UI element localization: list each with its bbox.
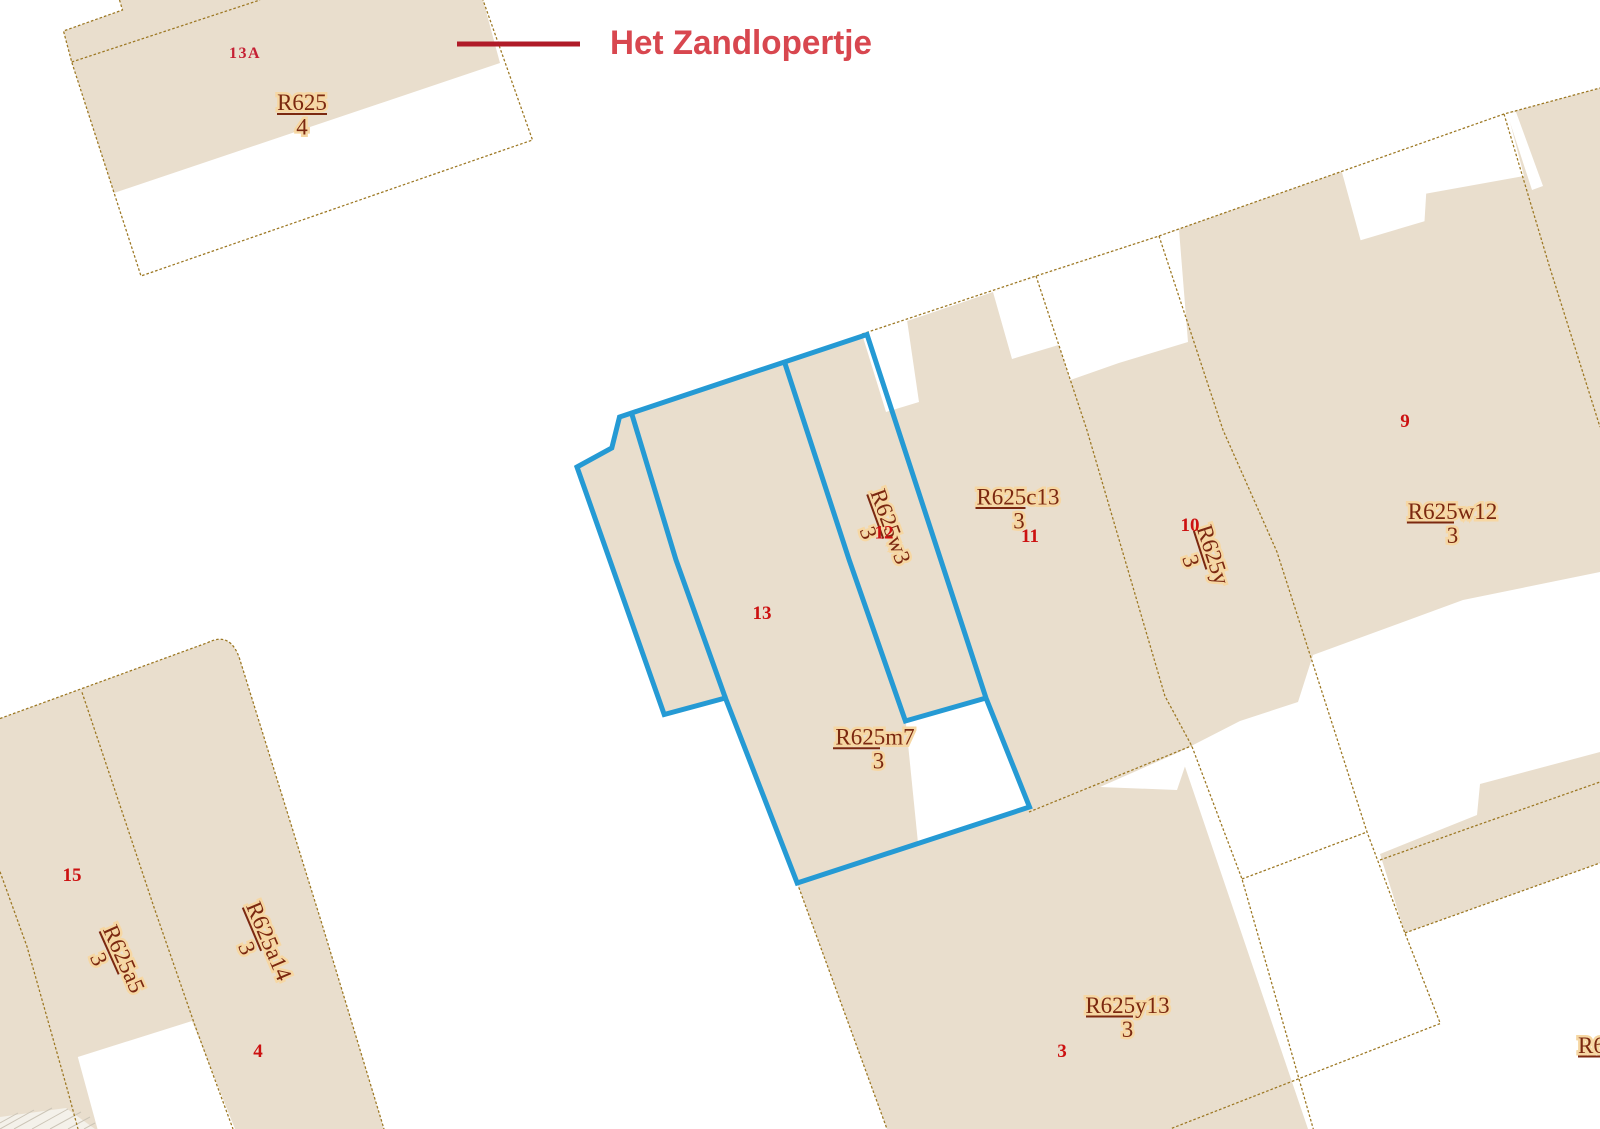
svg-text:R625m7: R625m7 bbox=[835, 725, 914, 750]
svg-text:R625y13: R625y13 bbox=[1085, 993, 1169, 1018]
svg-text:3: 3 bbox=[873, 749, 885, 774]
svg-text:Het Zandlopertje: Het Zandlopertje bbox=[610, 24, 872, 62]
svg-text:10: 10 bbox=[1181, 515, 1200, 536]
svg-text:3: 3 bbox=[1057, 1041, 1067, 1062]
svg-text:3: 3 bbox=[1122, 1017, 1134, 1042]
svg-text:12: 12 bbox=[875, 523, 894, 544]
svg-text:15: 15 bbox=[63, 865, 82, 886]
svg-text:R625: R625 bbox=[277, 90, 327, 115]
svg-text:4: 4 bbox=[253, 1041, 263, 1062]
svg-text:9: 9 bbox=[1400, 411, 1410, 432]
svg-text:R625w12: R625w12 bbox=[1408, 499, 1497, 524]
svg-text:11: 11 bbox=[1021, 526, 1039, 547]
svg-text:R625c13: R625c13 bbox=[976, 485, 1059, 510]
svg-text:3: 3 bbox=[1447, 523, 1459, 548]
svg-text:4: 4 bbox=[296, 115, 308, 140]
svg-text:13A: 13A bbox=[229, 45, 261, 62]
svg-text:13: 13 bbox=[753, 603, 772, 624]
svg-text:R6: R6 bbox=[1578, 1033, 1600, 1058]
